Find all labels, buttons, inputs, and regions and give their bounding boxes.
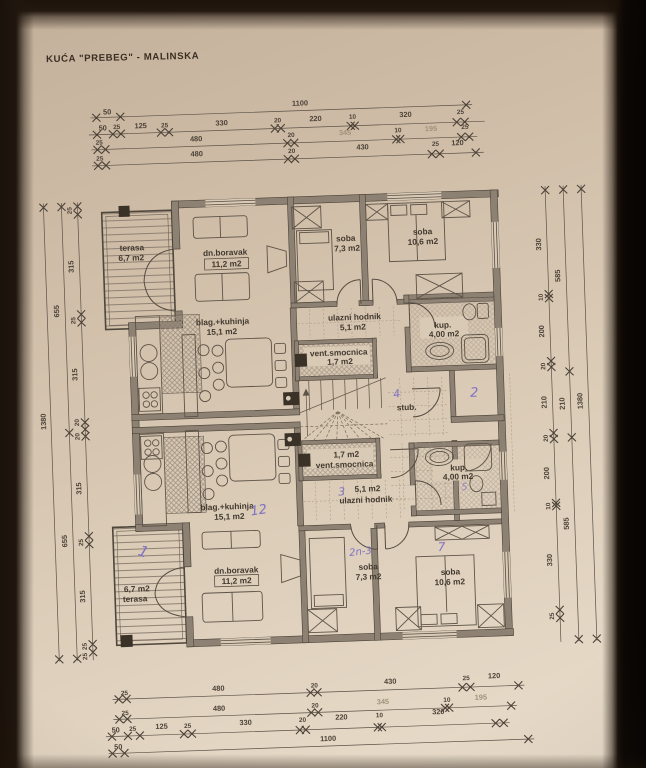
dim-value: 50 — [98, 123, 107, 132]
room-area: 11,2 m2 — [221, 575, 252, 586]
dim-value: 20 — [288, 148, 296, 155]
dim-value: 480 — [212, 684, 225, 693]
dim-value: 25 — [121, 690, 129, 697]
dim-value: 25 — [96, 140, 104, 147]
dim-value: 655 — [52, 305, 61, 318]
dim-value: 20 — [311, 682, 319, 689]
room-name: dn.boravak — [203, 247, 248, 259]
dining-table — [225, 338, 273, 388]
sink-bowl — [140, 344, 158, 362]
room-area: 10,6 m2 — [434, 576, 465, 587]
dim-value: 25 — [457, 109, 465, 116]
left-dimension-block: 25 315 25 315 20 20 315 25 315 25 25 655… — [31, 202, 97, 663]
dim-value: 220 — [309, 114, 322, 123]
chair — [274, 343, 285, 353]
stair-direction-line — [306, 393, 308, 437]
dim-value: 25 — [161, 122, 169, 129]
dimension-lines — [545, 185, 597, 642]
room-area: 15,1 m2 — [214, 511, 245, 522]
dim-value: 430 — [356, 142, 369, 151]
dim-value: 10 — [538, 293, 545, 301]
projection-dashed-line — [510, 373, 515, 513]
room-area: 7,3 m2 — [355, 571, 382, 582]
dim-value: 25 — [461, 124, 469, 131]
dim-value: 20 — [540, 362, 547, 370]
room-area: 10,6 m2 — [407, 236, 438, 247]
dim-value: 25 — [78, 538, 85, 546]
room-name: soba — [413, 226, 433, 237]
title-block: KUĆA "PREBEG" - MALINSKA — [46, 50, 199, 65]
handwritten-number: 3 — [338, 485, 345, 498]
dim-value: 10 — [394, 127, 402, 134]
dim-value: 25 — [82, 642, 89, 650]
handwritten-number: 5 — [461, 482, 468, 493]
room-area: 6,7 m2 — [118, 252, 145, 263]
bed-single — [309, 537, 346, 608]
dim-value: 25 — [66, 207, 73, 215]
room-area: 5,1 m2 — [354, 483, 381, 494]
room-name: terasa — [123, 593, 148, 604]
chair — [212, 345, 223, 356]
room-area: 4,00 m2 — [443, 471, 474, 482]
dim-value: 10 — [443, 697, 451, 704]
dim-value: 125 — [155, 722, 168, 731]
handwritten-number: 4 — [392, 387, 401, 401]
dim-value: 25 — [113, 124, 121, 131]
dim-value: 1100 — [320, 734, 336, 744]
right-dimension-block: 330 10 200 20 210 20 200 10 330 25 585 2… — [532, 185, 601, 645]
dim-value: 20 — [287, 132, 295, 139]
stove — [139, 388, 161, 412]
chair — [216, 458, 227, 469]
dim-value: 10 — [349, 114, 357, 121]
chair — [279, 473, 290, 483]
dim-value: 25 — [129, 726, 137, 733]
room-area: 5,1 m2 — [340, 321, 367, 332]
dim-value: 20 — [274, 117, 282, 124]
dim-value: 25 — [462, 675, 470, 682]
dim-value: 200 — [542, 467, 551, 480]
vent-grille — [295, 354, 307, 367]
stool — [199, 390, 210, 401]
dim-value: 200 — [537, 325, 546, 338]
room-door — [336, 280, 361, 305]
dim-value: 25 — [432, 141, 440, 148]
dim-value: 480 — [190, 149, 203, 158]
dining-table — [229, 434, 277, 482]
dim-value: 1380 — [39, 413, 49, 430]
sink-bowl — [144, 455, 162, 473]
dim-value: 320 — [432, 707, 445, 716]
dim-value: 25 — [70, 317, 77, 325]
chair — [213, 379, 224, 390]
dim-value: 25 — [82, 652, 89, 660]
sink-bowl — [140, 362, 158, 380]
dim-value: 1380 — [575, 393, 585, 410]
room-area: 7,3 m2 — [334, 243, 361, 254]
room-name: ulazni hodnik — [339, 494, 393, 506]
dim-value: 50 — [111, 725, 120, 734]
tv-cabinet — [281, 554, 301, 583]
dim-value: 20 — [74, 432, 81, 440]
dim-value: 120 — [488, 671, 501, 680]
dim-value: 655 — [60, 535, 69, 548]
room-area: 4,00 m2 — [429, 328, 460, 339]
chair — [276, 377, 287, 387]
room-name: stub. — [397, 402, 417, 413]
room-area: 15,1 m2 — [207, 326, 238, 337]
dim-value: 25 — [184, 723, 192, 730]
dim-value: 120 — [451, 138, 464, 147]
room-area: 1,7 m2 — [327, 356, 354, 367]
dim-value: 220 — [335, 712, 348, 721]
chair — [212, 362, 223, 373]
chair — [278, 456, 289, 466]
top-dimension-block: 50 1100 50 25 125 25 330 20 220 10 320 2… — [88, 92, 486, 170]
chair — [216, 475, 227, 486]
counter — [139, 434, 166, 527]
dim-value: 20 — [74, 418, 81, 426]
dim-value: 430 — [384, 677, 397, 686]
handwritten-number: 2 — [470, 386, 479, 401]
plan-body: terasa 6,7 m2 dn.boravak 11,2 m2 soba 7,… — [101, 190, 518, 650]
room-name: vent.smocnica — [316, 458, 374, 470]
dimension-lines — [105, 685, 535, 754]
tv-cabinet — [267, 245, 287, 273]
dim-value: 315 — [74, 482, 83, 495]
dim-value: 330 — [215, 118, 228, 127]
bottom-dimension-block: 25 480 20 430 25 120 25 480 20 345 10 19… — [104, 670, 534, 758]
dim-value: 315 — [70, 368, 79, 381]
dim-value: 25 — [96, 156, 104, 163]
bedroom-big-upper — [366, 201, 473, 304]
dim-value: 20 — [543, 434, 550, 442]
photographed-blueprint: KUĆA "PREBEG" - MALINSKA 50 1100 50 25 1… — [0, 0, 646, 768]
room-door — [385, 524, 410, 549]
dim-value: 210 — [539, 396, 548, 409]
dim-value: 25 — [549, 612, 556, 620]
room-name: soba — [441, 566, 461, 577]
vent-grille — [298, 453, 310, 466]
dim-value: 480 — [213, 704, 226, 713]
terrace-pillar — [118, 206, 129, 217]
wardrobe — [435, 525, 489, 540]
dim-value: 10 — [545, 502, 552, 510]
room-name: dn.boravak — [214, 564, 259, 576]
dim-value: 210 — [557, 397, 566, 410]
staircase — [299, 378, 388, 442]
dim-value: 125 — [134, 121, 147, 130]
room-area: 11,2 m2 — [211, 258, 242, 269]
dim-value: 20 — [299, 717, 307, 724]
dim-value: 20 — [311, 702, 319, 709]
terrace-pillar — [120, 635, 132, 647]
room-name: soba — [358, 561, 378, 572]
dim-value: 585 — [553, 269, 562, 282]
dim-value: 585 — [562, 517, 571, 530]
dim-value: 345 — [377, 697, 390, 706]
dim-value: 1100 — [292, 98, 308, 108]
dim-value: 50 — [103, 107, 112, 116]
dim-value: 330 — [239, 718, 252, 727]
handwritten-number: 2n-3 — [349, 546, 373, 559]
dim-value: 25 — [121, 710, 129, 717]
chair — [215, 441, 226, 452]
drawing-title: KUĆA "PREBEG" - MALINSKA — [46, 50, 199, 65]
entry-door — [283, 392, 299, 406]
dim-value: 330 — [545, 554, 554, 567]
dim-value: 195 — [474, 692, 487, 701]
dim-value: 315 — [66, 260, 75, 273]
room-door — [372, 278, 397, 303]
dim-value: 10 — [376, 712, 384, 719]
room-name: soba — [336, 233, 356, 244]
dim-value: 345 — [339, 128, 352, 137]
floor-plan-drawing: KUĆA "PREBEG" - MALINSKA 50 1100 50 25 1… — [0, 0, 646, 768]
handwritten-number: 12 — [250, 502, 268, 519]
entry-door — [284, 433, 300, 447]
sink-bowl — [144, 473, 162, 491]
dim-value: 330 — [534, 238, 543, 251]
terrace-upper — [101, 204, 175, 329]
dim-value: 480 — [190, 134, 203, 143]
bedroom-small-upper — [292, 205, 361, 306]
dim-value: 320 — [399, 110, 412, 119]
dim-value: 315 — [78, 590, 87, 603]
handwritten-number: 7 — [437, 540, 445, 554]
chair — [275, 360, 286, 370]
dim-value: 195 — [425, 124, 438, 133]
dim-value: 50 — [114, 742, 123, 751]
